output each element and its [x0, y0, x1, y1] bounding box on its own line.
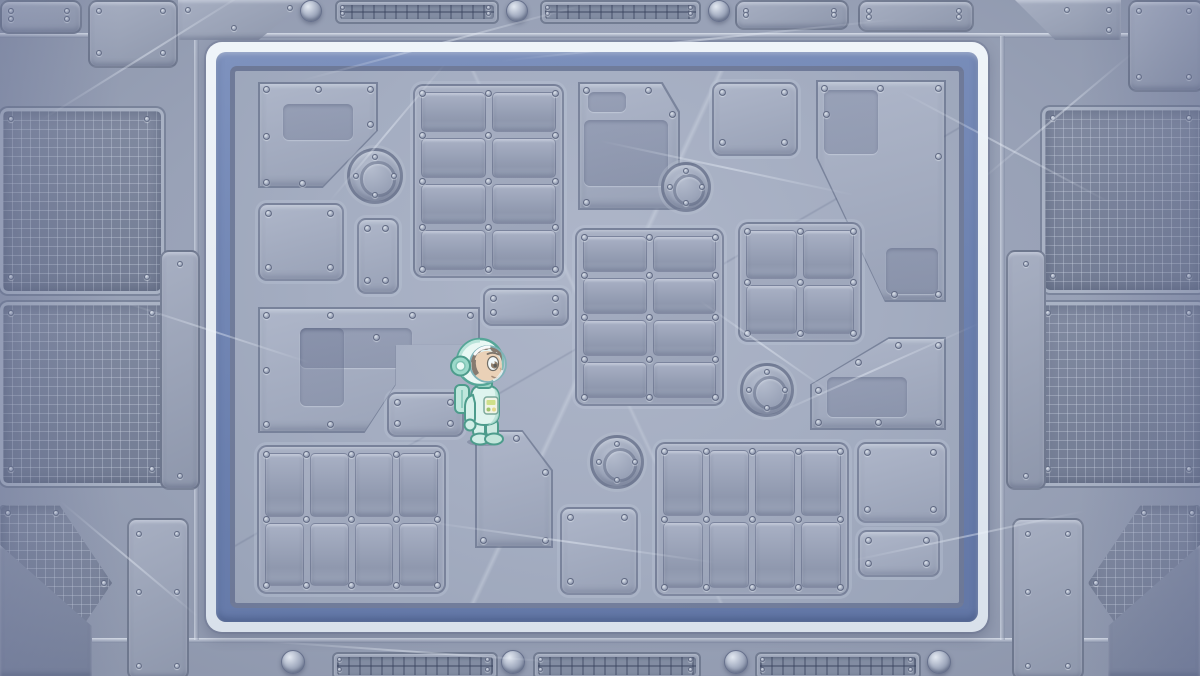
rivet [485, 266, 492, 273]
panel-recess [300, 328, 344, 406]
rivet [367, 86, 374, 93]
air-vent [540, 0, 701, 24]
rivet [749, 584, 756, 591]
rivet [855, 359, 862, 366]
rivet [486, 5, 491, 10]
hull-seam [1000, 36, 1005, 640]
rivet [661, 448, 668, 455]
rivet [712, 314, 719, 321]
rivet [749, 448, 756, 455]
vent-grate-panel [0, 108, 164, 294]
rivet [552, 178, 559, 185]
panel-recess [824, 90, 878, 154]
rivet [552, 224, 559, 231]
rivet [299, 180, 306, 187]
rivet [348, 582, 355, 589]
rivet [703, 516, 710, 523]
rivet [703, 448, 710, 455]
rivet [263, 179, 270, 186]
rivet [348, 516, 355, 523]
rivet [394, 399, 401, 406]
grid-panel-cell [421, 230, 486, 270]
rivet [382, 225, 389, 232]
grid-panel-cell [746, 285, 797, 334]
rivet [434, 582, 441, 589]
panel-recess [283, 104, 353, 140]
grid-panel-cell [492, 230, 557, 270]
rivet [545, 5, 550, 10]
rivet [53, 510, 59, 516]
rivet [877, 85, 884, 92]
rivet [485, 224, 492, 231]
rivet [781, 139, 788, 146]
grid-panel-cell [801, 450, 841, 516]
rivet [101, 580, 107, 586]
rivet [712, 394, 719, 401]
chest-badge [484, 397, 498, 414]
rivet [688, 667, 693, 672]
grid-panel-cell [399, 453, 438, 517]
grid-panel-cell [803, 285, 854, 334]
rivet [337, 667, 342, 672]
rivet [797, 228, 804, 235]
grid-panel-cell [583, 236, 647, 272]
rivet [743, 12, 749, 18]
rivet [372, 154, 378, 160]
hull-plate [1012, 518, 1084, 676]
rivet [419, 132, 426, 139]
rivet [419, 266, 426, 273]
rivet [661, 516, 668, 523]
rivet [136, 663, 142, 669]
rivet [1023, 261, 1029, 267]
visor-glass [470, 346, 506, 382]
rivet [144, 116, 150, 122]
rivet [327, 264, 334, 271]
rivet [364, 277, 371, 284]
rivet [746, 387, 752, 393]
grid-panel-cell [421, 92, 486, 132]
air-vent [533, 652, 701, 676]
rivet [614, 441, 620, 447]
floor-hatch [590, 435, 644, 489]
rivet [923, 560, 930, 567]
rivet [303, 516, 310, 523]
rivet [434, 516, 441, 523]
rivet [367, 121, 374, 128]
rivet [865, 560, 872, 567]
rivet [719, 139, 726, 146]
rivet [567, 514, 574, 521]
rivet [935, 153, 942, 160]
floor-grid-panel [738, 222, 862, 342]
rivet [177, 261, 183, 267]
rivet [797, 279, 804, 286]
rivet [1186, 466, 1192, 472]
rivet [596, 459, 602, 465]
rivet [688, 11, 693, 16]
rivet [263, 312, 270, 319]
floor-panel [857, 442, 947, 523]
rivet [174, 589, 180, 595]
rivet [265, 264, 272, 271]
floor-grid-panel [575, 228, 724, 406]
rivet [419, 90, 426, 97]
rivet [1186, 310, 1192, 316]
rivet [1186, 74, 1192, 80]
rivet [490, 295, 497, 302]
rivet [850, 279, 857, 286]
rivet [930, 449, 937, 456]
rivet [419, 178, 426, 185]
rivet [865, 537, 872, 544]
rivet [837, 448, 844, 455]
rivet [581, 314, 588, 321]
hull-plate [1006, 250, 1046, 490]
rivet [552, 266, 559, 273]
rivet [1025, 531, 1031, 537]
rivet [263, 133, 270, 140]
rivet [864, 506, 871, 513]
grid-panel-cell [663, 450, 703, 516]
rivet [185, 7, 191, 13]
rivet [393, 582, 400, 589]
dome-rivet [281, 650, 305, 674]
grid-panel-cell [355, 523, 394, 587]
rivet [935, 291, 942, 298]
rivet [581, 272, 588, 279]
rivet [688, 5, 693, 10]
rivet [8, 466, 14, 472]
rivet [136, 531, 142, 537]
rivet [353, 173, 359, 179]
rivet [614, 477, 620, 483]
rivet [837, 516, 844, 523]
grid-panel-cell [709, 522, 749, 588]
rivet [372, 192, 378, 198]
vent-grate-panel [1042, 107, 1200, 293]
rivet [263, 516, 270, 523]
vent-grate-panel [0, 302, 169, 486]
rivet [263, 367, 270, 374]
rivet [542, 537, 549, 544]
floor-panel [483, 288, 569, 326]
rivet [646, 314, 653, 321]
rivet [485, 178, 492, 185]
grid-panel-cell [653, 362, 717, 398]
rivet [646, 394, 653, 401]
rivet [581, 394, 588, 401]
dome-rivet [300, 0, 322, 22]
rivet [8, 274, 14, 280]
floor-panel [560, 507, 638, 595]
rivet [645, 87, 652, 94]
rivet [781, 89, 788, 96]
dome-rivet [708, 0, 730, 22]
rivet [632, 459, 638, 465]
rivet [5, 510, 11, 516]
rivet [327, 210, 334, 217]
rivet [263, 582, 270, 589]
floor-grid-panel [413, 84, 564, 278]
grid-panel-cell [355, 453, 394, 517]
hull-plate [735, 0, 849, 30]
rivet [1023, 473, 1029, 479]
rivet [744, 228, 751, 235]
rivet [552, 90, 559, 97]
panel-recess [827, 377, 907, 417]
rivet [956, 14, 962, 20]
rivet [327, 312, 334, 319]
rivet [646, 272, 653, 279]
grid-panel-cell [492, 138, 557, 178]
rivet [419, 224, 426, 231]
rivet [391, 173, 397, 179]
rivet [583, 199, 590, 206]
rivet [552, 295, 559, 302]
rivet [1136, 74, 1142, 80]
dome-rivet [501, 650, 525, 674]
rivet [303, 582, 310, 589]
rivet [144, 274, 150, 280]
rivet [1093, 580, 1099, 586]
panel-recess [886, 248, 938, 294]
floor-grid-panel [257, 445, 446, 594]
rivet [8, 116, 14, 122]
rivet [935, 85, 942, 92]
rivet [393, 451, 400, 458]
rivet [712, 272, 719, 279]
rivet [174, 531, 180, 537]
rivet [1025, 663, 1031, 669]
rivet [1065, 663, 1071, 669]
floor-panel [357, 218, 399, 294]
rivet [815, 419, 822, 426]
rivet [935, 419, 942, 426]
grid-panel-cell [310, 523, 349, 587]
rivet [485, 132, 492, 139]
rivet [552, 132, 559, 139]
rivet [8, 16, 14, 22]
rivet [667, 184, 673, 190]
rivet [935, 342, 942, 349]
rivet [891, 291, 898, 298]
rivet [8, 310, 14, 316]
rivet [749, 516, 756, 523]
air-vent [332, 652, 498, 676]
rivet [764, 405, 770, 411]
rivet [760, 657, 765, 662]
hull-plate [858, 0, 974, 32]
panel-recess [584, 120, 668, 186]
rivet [177, 473, 183, 479]
vent-slats [337, 657, 493, 675]
rivet [1065, 531, 1071, 537]
rivet [864, 449, 871, 456]
dome-rivet [724, 650, 748, 674]
grid-panel-cell [709, 450, 749, 516]
rivet [683, 200, 689, 206]
rivet [646, 234, 653, 241]
rivet [394, 420, 401, 427]
rivet [760, 667, 765, 672]
rivet [485, 657, 490, 662]
hull-plate [127, 518, 189, 676]
rivet [1106, 27, 1112, 33]
panel-recess [588, 92, 626, 112]
rivet [567, 578, 574, 585]
game-scene [0, 0, 1200, 676]
grid-panel-cell [583, 320, 647, 356]
rivet [1050, 273, 1056, 279]
rivet [287, 5, 293, 11]
vent-slats [545, 5, 696, 19]
rivet [364, 225, 371, 232]
arm [465, 395, 476, 431]
rivet [712, 234, 719, 241]
rivet [373, 334, 380, 341]
rivet [795, 516, 802, 523]
rivet [764, 369, 770, 375]
floor-hatch [661, 162, 711, 212]
rivet [797, 330, 804, 337]
vent-grate-panel [1037, 302, 1200, 486]
rivet [930, 506, 937, 513]
rivet [315, 86, 322, 93]
rivet [485, 667, 490, 672]
dome-rivet [927, 650, 951, 674]
rivet [1186, 115, 1192, 121]
hull-plate [0, 0, 82, 34]
rivet [480, 537, 487, 544]
rivet [821, 85, 828, 92]
rivet [850, 228, 857, 235]
rivet [409, 312, 416, 319]
grid-panel-cell [801, 522, 841, 588]
rivet [393, 516, 400, 523]
rivet [467, 312, 474, 319]
rivet [434, 451, 441, 458]
grid-panel-cell [583, 362, 647, 398]
rivet [831, 12, 837, 18]
rivet [875, 419, 882, 426]
rivet [1025, 589, 1031, 595]
floor-panel [858, 530, 940, 577]
rivet [1189, 510, 1195, 516]
rivet [348, 451, 355, 458]
rivet [669, 111, 676, 118]
rivet [782, 387, 788, 393]
rivet [327, 421, 334, 428]
rivet [538, 667, 543, 672]
rivet [866, 14, 872, 20]
rivet [64, 16, 70, 22]
grid-panel-cell [746, 230, 797, 279]
rivet [895, 342, 902, 349]
vent-slats [538, 657, 696, 675]
rivet [795, 584, 802, 591]
astronaut-icon [450, 335, 516, 447]
air-vent [335, 0, 499, 24]
grid-panel-cell [663, 522, 703, 588]
astronaut-character[interactable] [450, 335, 516, 452]
rivet [823, 111, 830, 118]
rivet [303, 451, 310, 458]
vent-slats [340, 5, 494, 19]
rivet [744, 279, 751, 286]
grid-panel-cell [421, 184, 486, 224]
grid-panel-cell [421, 138, 486, 178]
grid-panel-cell [803, 230, 854, 279]
rivet [545, 11, 550, 16]
grid-panel-cell [399, 523, 438, 587]
rivet [1064, 7, 1070, 13]
rivet [552, 309, 559, 316]
hatch-inner-ring [603, 448, 637, 482]
rivet [542, 469, 549, 476]
rivet [1186, 273, 1192, 279]
hatch-inner-ring [673, 174, 705, 206]
rivet [263, 421, 270, 428]
rivet [581, 234, 588, 241]
vent-slats [760, 657, 916, 675]
grid-panel-cell [265, 453, 304, 517]
rivet [160, 50, 166, 56]
rivet [744, 330, 751, 337]
rivet [908, 657, 913, 662]
rivet [621, 514, 628, 521]
rivet [96, 50, 102, 56]
hull-plate [88, 0, 178, 68]
rivet [908, 667, 913, 672]
rivet [583, 87, 590, 94]
air-vent [755, 652, 921, 676]
rivet [699, 184, 705, 190]
rivet [64, 8, 70, 14]
rivet [1065, 589, 1071, 595]
floor-grid-panel [655, 442, 849, 596]
rivet [96, 8, 102, 14]
rivet [923, 537, 930, 544]
grid-panel-cell [755, 522, 795, 588]
rivet [337, 657, 342, 662]
hull-plate [1128, 0, 1200, 92]
rivet [382, 277, 389, 284]
rivet [1106, 7, 1112, 13]
grid-panel-cell [653, 278, 717, 314]
rivet [340, 11, 345, 16]
dome-rivet [506, 0, 528, 22]
grid-panel-cell [492, 92, 557, 132]
hatch-inner-ring [360, 161, 395, 196]
rivet [1141, 510, 1147, 516]
rivet [231, 25, 237, 31]
rivet [8, 8, 14, 14]
rivet [149, 466, 155, 472]
grid-panel-cell [755, 450, 795, 516]
grid-panel-cell [310, 453, 349, 517]
rivet [581, 356, 588, 363]
hull-plate [160, 250, 200, 490]
rivet [490, 309, 497, 316]
grid-panel-cell [653, 236, 717, 272]
rivet [485, 90, 492, 97]
rivet [263, 86, 270, 93]
rivet [265, 210, 272, 217]
grid-panel-cell [265, 523, 304, 587]
hatch-inner-ring [753, 376, 787, 410]
rivet [263, 451, 270, 458]
